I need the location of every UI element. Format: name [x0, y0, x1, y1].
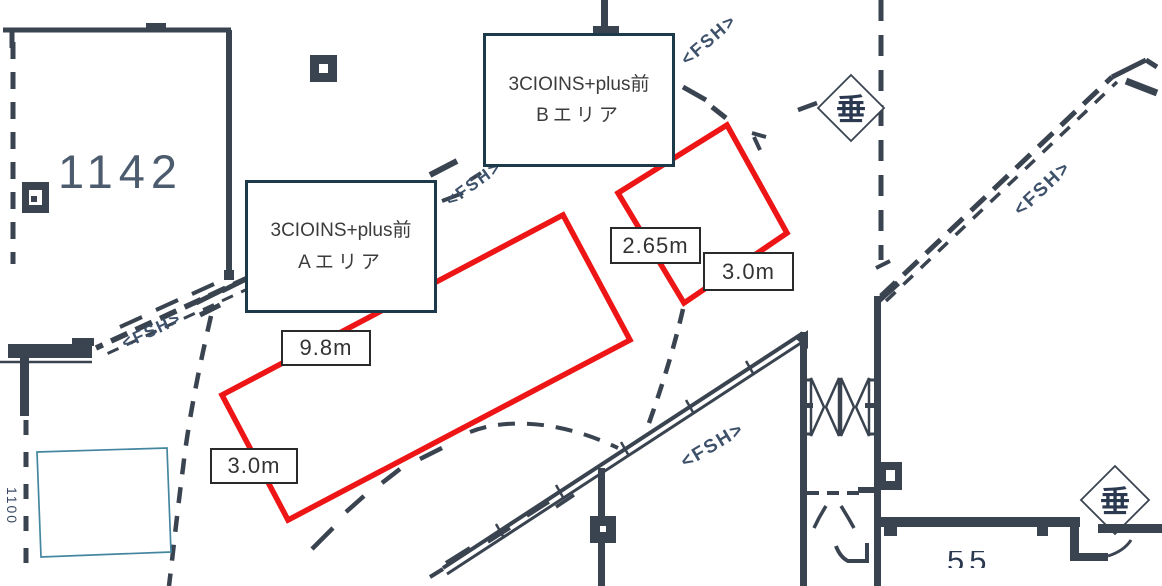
area-b-label-line2: Bエリア	[536, 100, 622, 131]
double-door-symbol	[807, 378, 874, 436]
dashed-boundary-curve	[169, 316, 211, 586]
entrance-walls	[800, 296, 881, 586]
area-a-width-box: 3.0m	[210, 448, 298, 484]
area-a-label-line2: Aエリア	[298, 247, 384, 278]
top-right-fsh-line	[877, 60, 1157, 302]
area-b-length-box: 2.65m	[610, 227, 701, 264]
central-diagonal-wall	[430, 330, 808, 577]
bottom-door-arc	[1108, 540, 1131, 556]
blue-outline-rect	[37, 448, 171, 557]
room-number-partial-55: 55	[947, 551, 1027, 568]
area-b-label-box: 3CIOINS+plus前 Bエリア	[483, 33, 675, 167]
room-number-partial-55-clip: 55	[947, 551, 1027, 568]
area-a-length-box: 9.8m	[281, 330, 371, 366]
floor-plan-canvas: 1142 55 1100 <FSH> <FSH> <FSH> <FSH> <FS…	[0, 0, 1162, 586]
hanging-wall-symbol-bottom: 垂	[1100, 477, 1130, 521]
room-number-rotated-left: 1100	[4, 487, 20, 525]
area-b-width-box: 3.0m	[703, 252, 794, 291]
area-a-label-line1: 3CIOINS+plus前	[271, 215, 412, 246]
wall-post-symbol	[590, 468, 616, 586]
top-wall-stub	[593, 0, 619, 36]
hanging-wall-symbol-top: 垂	[836, 85, 866, 129]
area-b-label-line1: 3CIOINS+plus前	[509, 69, 650, 100]
right-vertical-dashed-line	[876, 0, 890, 268]
room-number-1142: 1142	[58, 144, 183, 199]
area-a-label-box: 3CIOINS+plus前 Aエリア	[245, 180, 437, 313]
door-swing-details	[807, 487, 875, 561]
hanging-wall-diamonds	[818, 75, 1162, 534]
